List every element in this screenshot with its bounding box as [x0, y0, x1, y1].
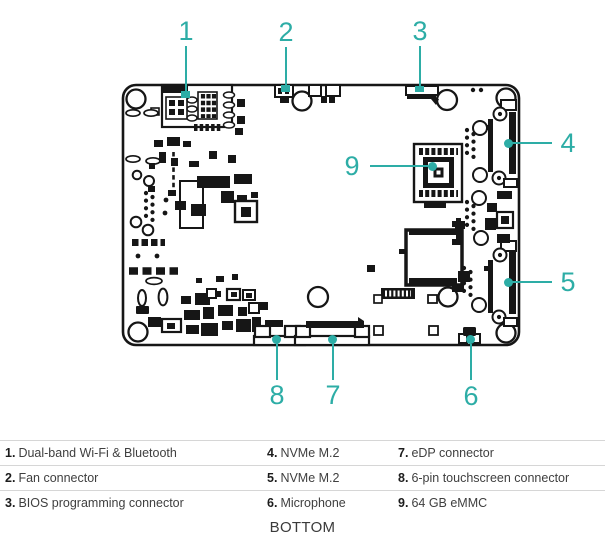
diagram-stage: 1 2 3 4 5 6 7 8 9 1.Dual-band Wi-Fi & Bl… — [0, 0, 605, 557]
callout-8-label: 8 — [261, 381, 293, 409]
legend-item-8: 8.6-pin touchscreen connector — [393, 471, 605, 485]
legend-item-2: 2.Fan connector — [0, 471, 262, 485]
callout-5-label: 5 — [552, 268, 584, 296]
legend-item-label: NVMe M.2 — [280, 446, 339, 460]
legend-item-5: 5.NVMe M.2 — [262, 471, 393, 485]
legend-item-label: NVMe M.2 — [280, 471, 339, 485]
legend-item-label: Dual-band Wi-Fi & Bluetooth — [18, 446, 176, 460]
callout-9-label: 9 — [336, 152, 368, 180]
legend-item-number: 4. — [267, 446, 277, 460]
legend-item-number: 8. — [398, 471, 408, 485]
legend-item-4: 4.NVMe M.2 — [262, 446, 393, 460]
legend-item-number: 5. — [267, 471, 277, 485]
legend-item-label: 6-pin touchscreen connector — [411, 471, 569, 485]
callout-2-marker — [281, 85, 290, 92]
callout-4-leader-line — [510, 142, 552, 144]
callout-1-marker — [181, 91, 190, 98]
callout-7-leader-line — [332, 343, 334, 380]
legend-item-label: BIOS programming connector — [18, 496, 183, 510]
legend-item-1: 1.Dual-band Wi-Fi & Bluetooth — [0, 446, 262, 460]
callout-4-marker — [504, 139, 513, 148]
legend-item-number: 9. — [398, 496, 408, 510]
legend: 1.Dual-band Wi-Fi & Bluetooth 4.NVMe M.2… — [0, 440, 605, 515]
legend-item-label: Microphone — [280, 496, 345, 510]
legend-item-label: 64 GB eMMC — [411, 496, 487, 510]
callout-1-label: 1 — [170, 17, 202, 45]
callout-6-marker — [466, 335, 475, 344]
callout-7-marker — [328, 335, 337, 344]
callout-3-marker — [415, 86, 424, 92]
legend-row: 2.Fan connector 5.NVMe M.2 8.6-pin touch… — [0, 465, 605, 490]
legend-item-number: 7. — [398, 446, 408, 460]
callout-5-leader-line — [510, 281, 552, 283]
callout-7-label: 7 — [317, 381, 349, 409]
legend-item-label: Fan connector — [18, 471, 98, 485]
callout-8-marker — [272, 335, 281, 344]
legend-item-6: 6.Microphone — [262, 496, 393, 510]
callout-5-marker — [504, 278, 513, 287]
legend-item-9: 9.64 GB eMMC — [393, 496, 605, 510]
callout-3-label: 3 — [404, 17, 436, 45]
callout-6-leader-line — [470, 344, 472, 380]
callout-2-leader-line — [285, 47, 287, 86]
callout-2-label: 2 — [270, 18, 302, 46]
callout-1-leader-line — [185, 46, 187, 94]
legend-row: 3.BIOS programming connector 6.Microphon… — [0, 490, 605, 515]
legend-item-number: 6. — [267, 496, 277, 510]
callout-8-leader-line — [276, 343, 278, 380]
legend-item-number: 1. — [5, 446, 15, 460]
legend-item-3: 3.BIOS programming connector — [0, 496, 262, 510]
callout-4-label: 4 — [552, 129, 584, 157]
callout-9-leader-line — [370, 165, 428, 167]
legend-item-number: 2. — [5, 471, 15, 485]
view-caption: BOTTOM — [0, 519, 605, 536]
legend-item-7: 7.eDP connector — [393, 446, 605, 460]
legend-item-label: eDP connector — [411, 446, 493, 460]
callout-6-label: 6 — [455, 382, 487, 410]
callout-9-marker — [428, 162, 437, 171]
callout-3-leader-line — [419, 46, 421, 87]
legend-item-number: 3. — [5, 496, 15, 510]
legend-row: 1.Dual-band Wi-Fi & Bluetooth 4.NVMe M.2… — [0, 440, 605, 465]
